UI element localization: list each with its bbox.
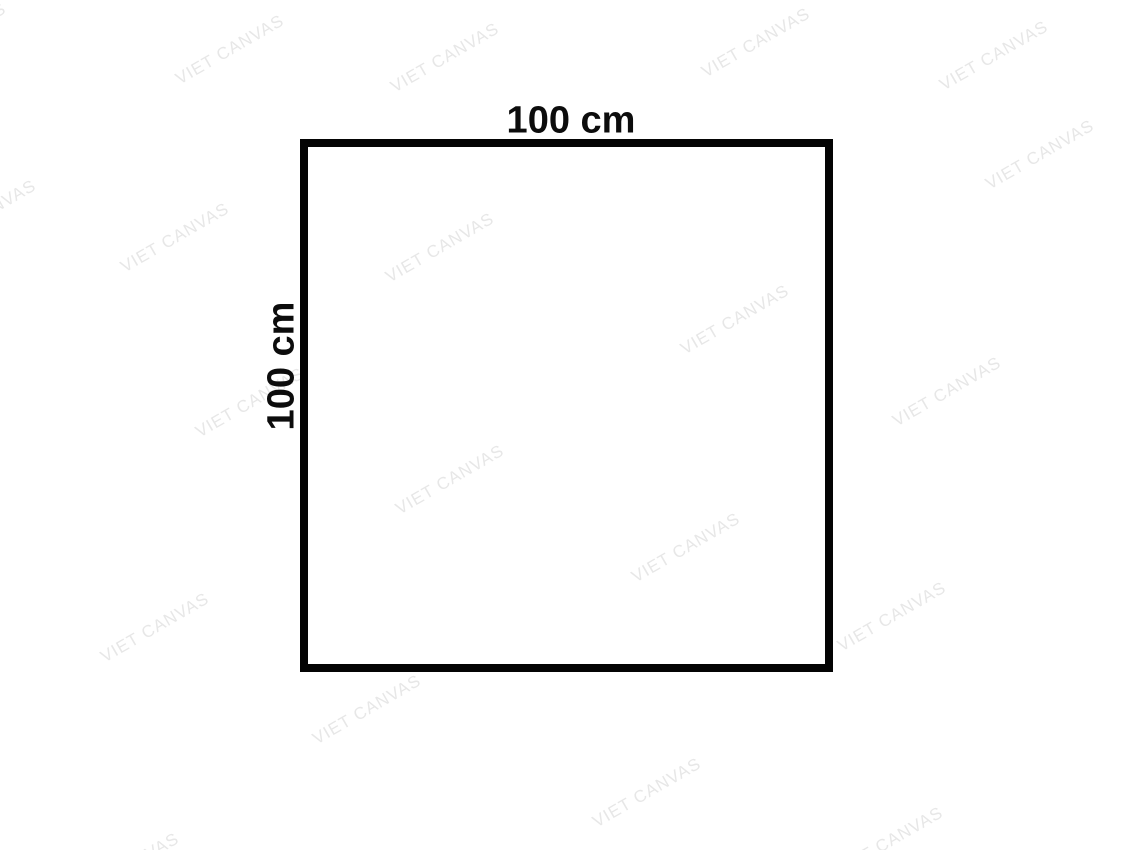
watermark-text: VIET CANVAS [0,0,10,77]
watermark-text: VIET CANVAS [172,11,288,89]
height-dimension-label: 100 cm [261,302,304,431]
watermark-text: VIET CANVAS [698,4,814,82]
watermark-text: VIET CANVAS [387,19,503,97]
diagram-canvas: VIET CANVASVIET CANVASVIET CANVASVIET CA… [0,0,1134,850]
watermark-text: VIET CANVAS [0,176,40,254]
square-outline [300,139,833,672]
width-dimension-label: 100 cm [507,100,636,143]
watermark-text: VIET CANVAS [117,199,233,277]
watermark-text: VIET CANVAS [97,589,213,667]
watermark-text: VIET CANVAS [831,803,947,850]
watermark-text: VIET CANVAS [936,17,1052,95]
watermark-text: VIET CANVAS [834,578,950,656]
watermark-text: VIET CANVAS [589,754,705,832]
watermark-text: VIET CANVAS [889,353,1005,431]
watermark-text: VIET CANVAS [309,671,425,749]
watermark-text: VIET CANVAS [67,829,183,850]
watermark-text: VIET CANVAS [982,116,1098,194]
